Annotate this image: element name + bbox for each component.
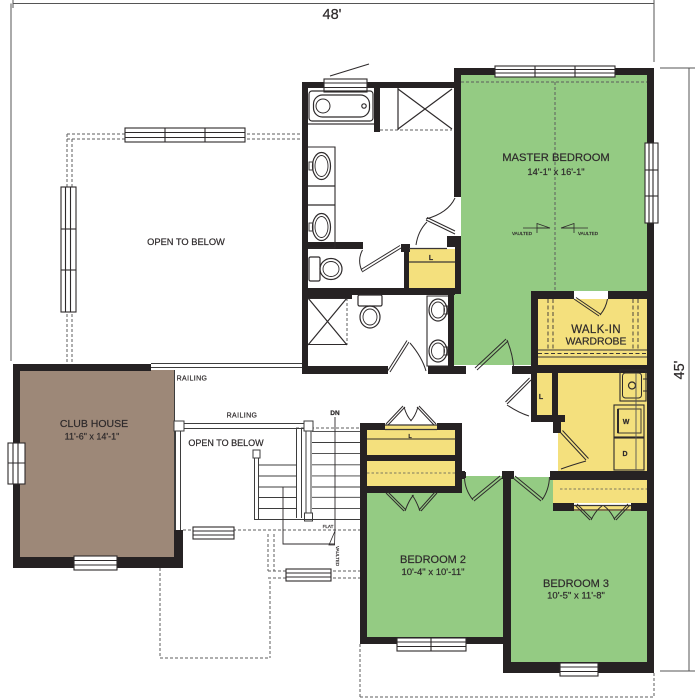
svg-text:RAILING: RAILING [177, 376, 208, 383]
svg-text:BEDROOM 3: BEDROOM 3 [543, 578, 609, 590]
svg-text:WALK-IN: WALK-IN [571, 324, 621, 336]
svg-text:10'-5" x 11'-8": 10'-5" x 11'-8" [547, 591, 605, 602]
svg-text:48': 48' [323, 7, 342, 23]
svg-text:W: W [623, 419, 630, 426]
svg-text:L: L [539, 394, 544, 401]
svg-text:WARDROBE: WARDROBE [566, 337, 627, 348]
svg-text:L: L [429, 255, 434, 262]
svg-text:D: D [622, 451, 627, 458]
svg-text:VAULTED: VAULTED [578, 231, 599, 236]
svg-text:DN: DN [330, 410, 340, 417]
svg-text:OPEN TO BELOW: OPEN TO BELOW [147, 237, 225, 247]
svg-text:45': 45' [672, 360, 688, 379]
svg-text:VAULTED: VAULTED [512, 231, 533, 236]
svg-text:CLUB HOUSE: CLUB HOUSE [60, 418, 128, 430]
svg-text:10'-4" x 10'-11": 10'-4" x 10'-11" [401, 567, 464, 578]
svg-text:BEDROOM 2: BEDROOM 2 [400, 554, 466, 566]
svg-text:RAILING: RAILING [227, 413, 258, 420]
svg-text:MASTER BEDROOM: MASTER BEDROOM [502, 152, 610, 164]
svg-text:11'-6" x 14'-1": 11'-6" x 14'-1" [65, 432, 120, 442]
svg-text:VAULTED: VAULTED [335, 546, 340, 567]
svg-text:FLAT: FLAT [323, 524, 334, 529]
svg-text:14'-1" x 16'-1": 14'-1" x 16'-1" [527, 167, 584, 177]
svg-text:OPEN TO BELOW: OPEN TO BELOW [188, 438, 264, 448]
